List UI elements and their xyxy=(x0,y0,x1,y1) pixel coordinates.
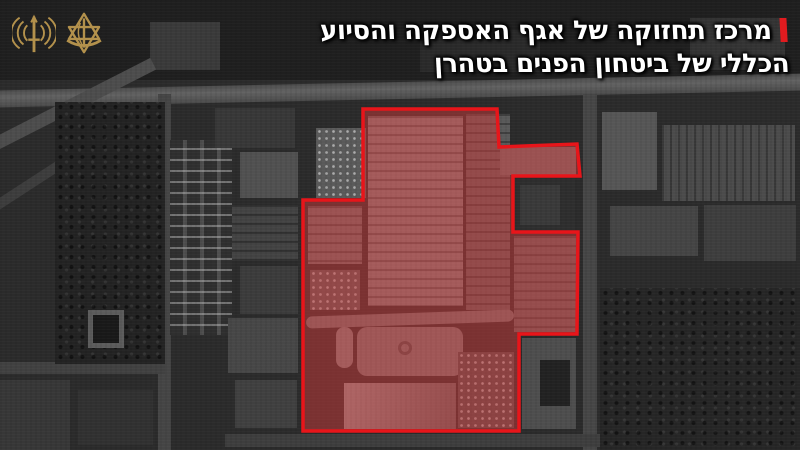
radio-waves-unit-emblem-icon xyxy=(12,10,56,56)
infographic-canvas: מרכז תחזוקה של אגף האספקה והסיוע הכללי ש… xyxy=(0,0,800,450)
military-emblems xyxy=(12,10,105,56)
target-outline-polygon xyxy=(303,109,580,431)
headline: מרכז תחזוקה של אגף האספקה והסיוע הכללי ש… xyxy=(319,15,790,81)
headline-line-2-text: הכללי של ביטחון הפנים בטהרן xyxy=(433,49,790,79)
headline-line-1: מרכז תחזוקה של אגף האספקה והסיוע xyxy=(319,15,788,48)
red-accent-bar xyxy=(779,18,787,42)
headline-line-2: הכללי של ביטחון הפנים בטהרן xyxy=(321,48,790,81)
idf-emblem-icon xyxy=(63,10,105,56)
headline-line-1-text: מרכז תחזוקה של אגף האספקה והסיוע xyxy=(319,16,772,46)
